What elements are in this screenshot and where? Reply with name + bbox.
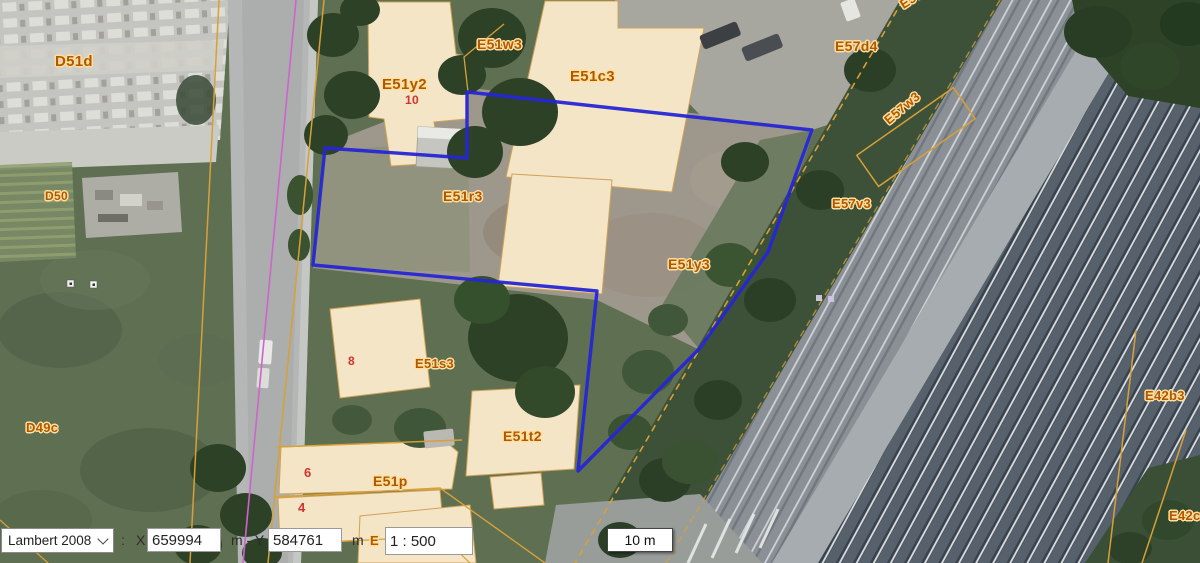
building-e51s3-house — [330, 299, 430, 398]
car-white-1 — [258, 340, 273, 365]
crs-select[interactable]: Lambert 2008 — [1, 528, 114, 553]
car-white-2 — [256, 368, 269, 389]
y-coordinate-input[interactable] — [268, 528, 342, 552]
map-canvas[interactable]: D51dD50D49cE51y2E51w3E51c3E51r3E51y3E51s… — [0, 0, 1200, 563]
scale-bar: 10 m — [607, 528, 673, 552]
building-central — [498, 174, 612, 294]
building-e51t2-annex — [490, 473, 544, 509]
aerial-imagery — [0, 0, 1200, 563]
crs-select-wrap: Lambert 2008 — [1, 528, 114, 553]
x-coordinate-input[interactable] — [147, 528, 221, 552]
building-no6 — [279, 441, 458, 494]
crop-field — [0, 162, 76, 262]
scale-bar-label: 10 m — [624, 532, 655, 548]
storage-yard — [82, 172, 182, 238]
scale-input[interactable] — [385, 527, 473, 555]
trailer — [423, 428, 455, 448]
